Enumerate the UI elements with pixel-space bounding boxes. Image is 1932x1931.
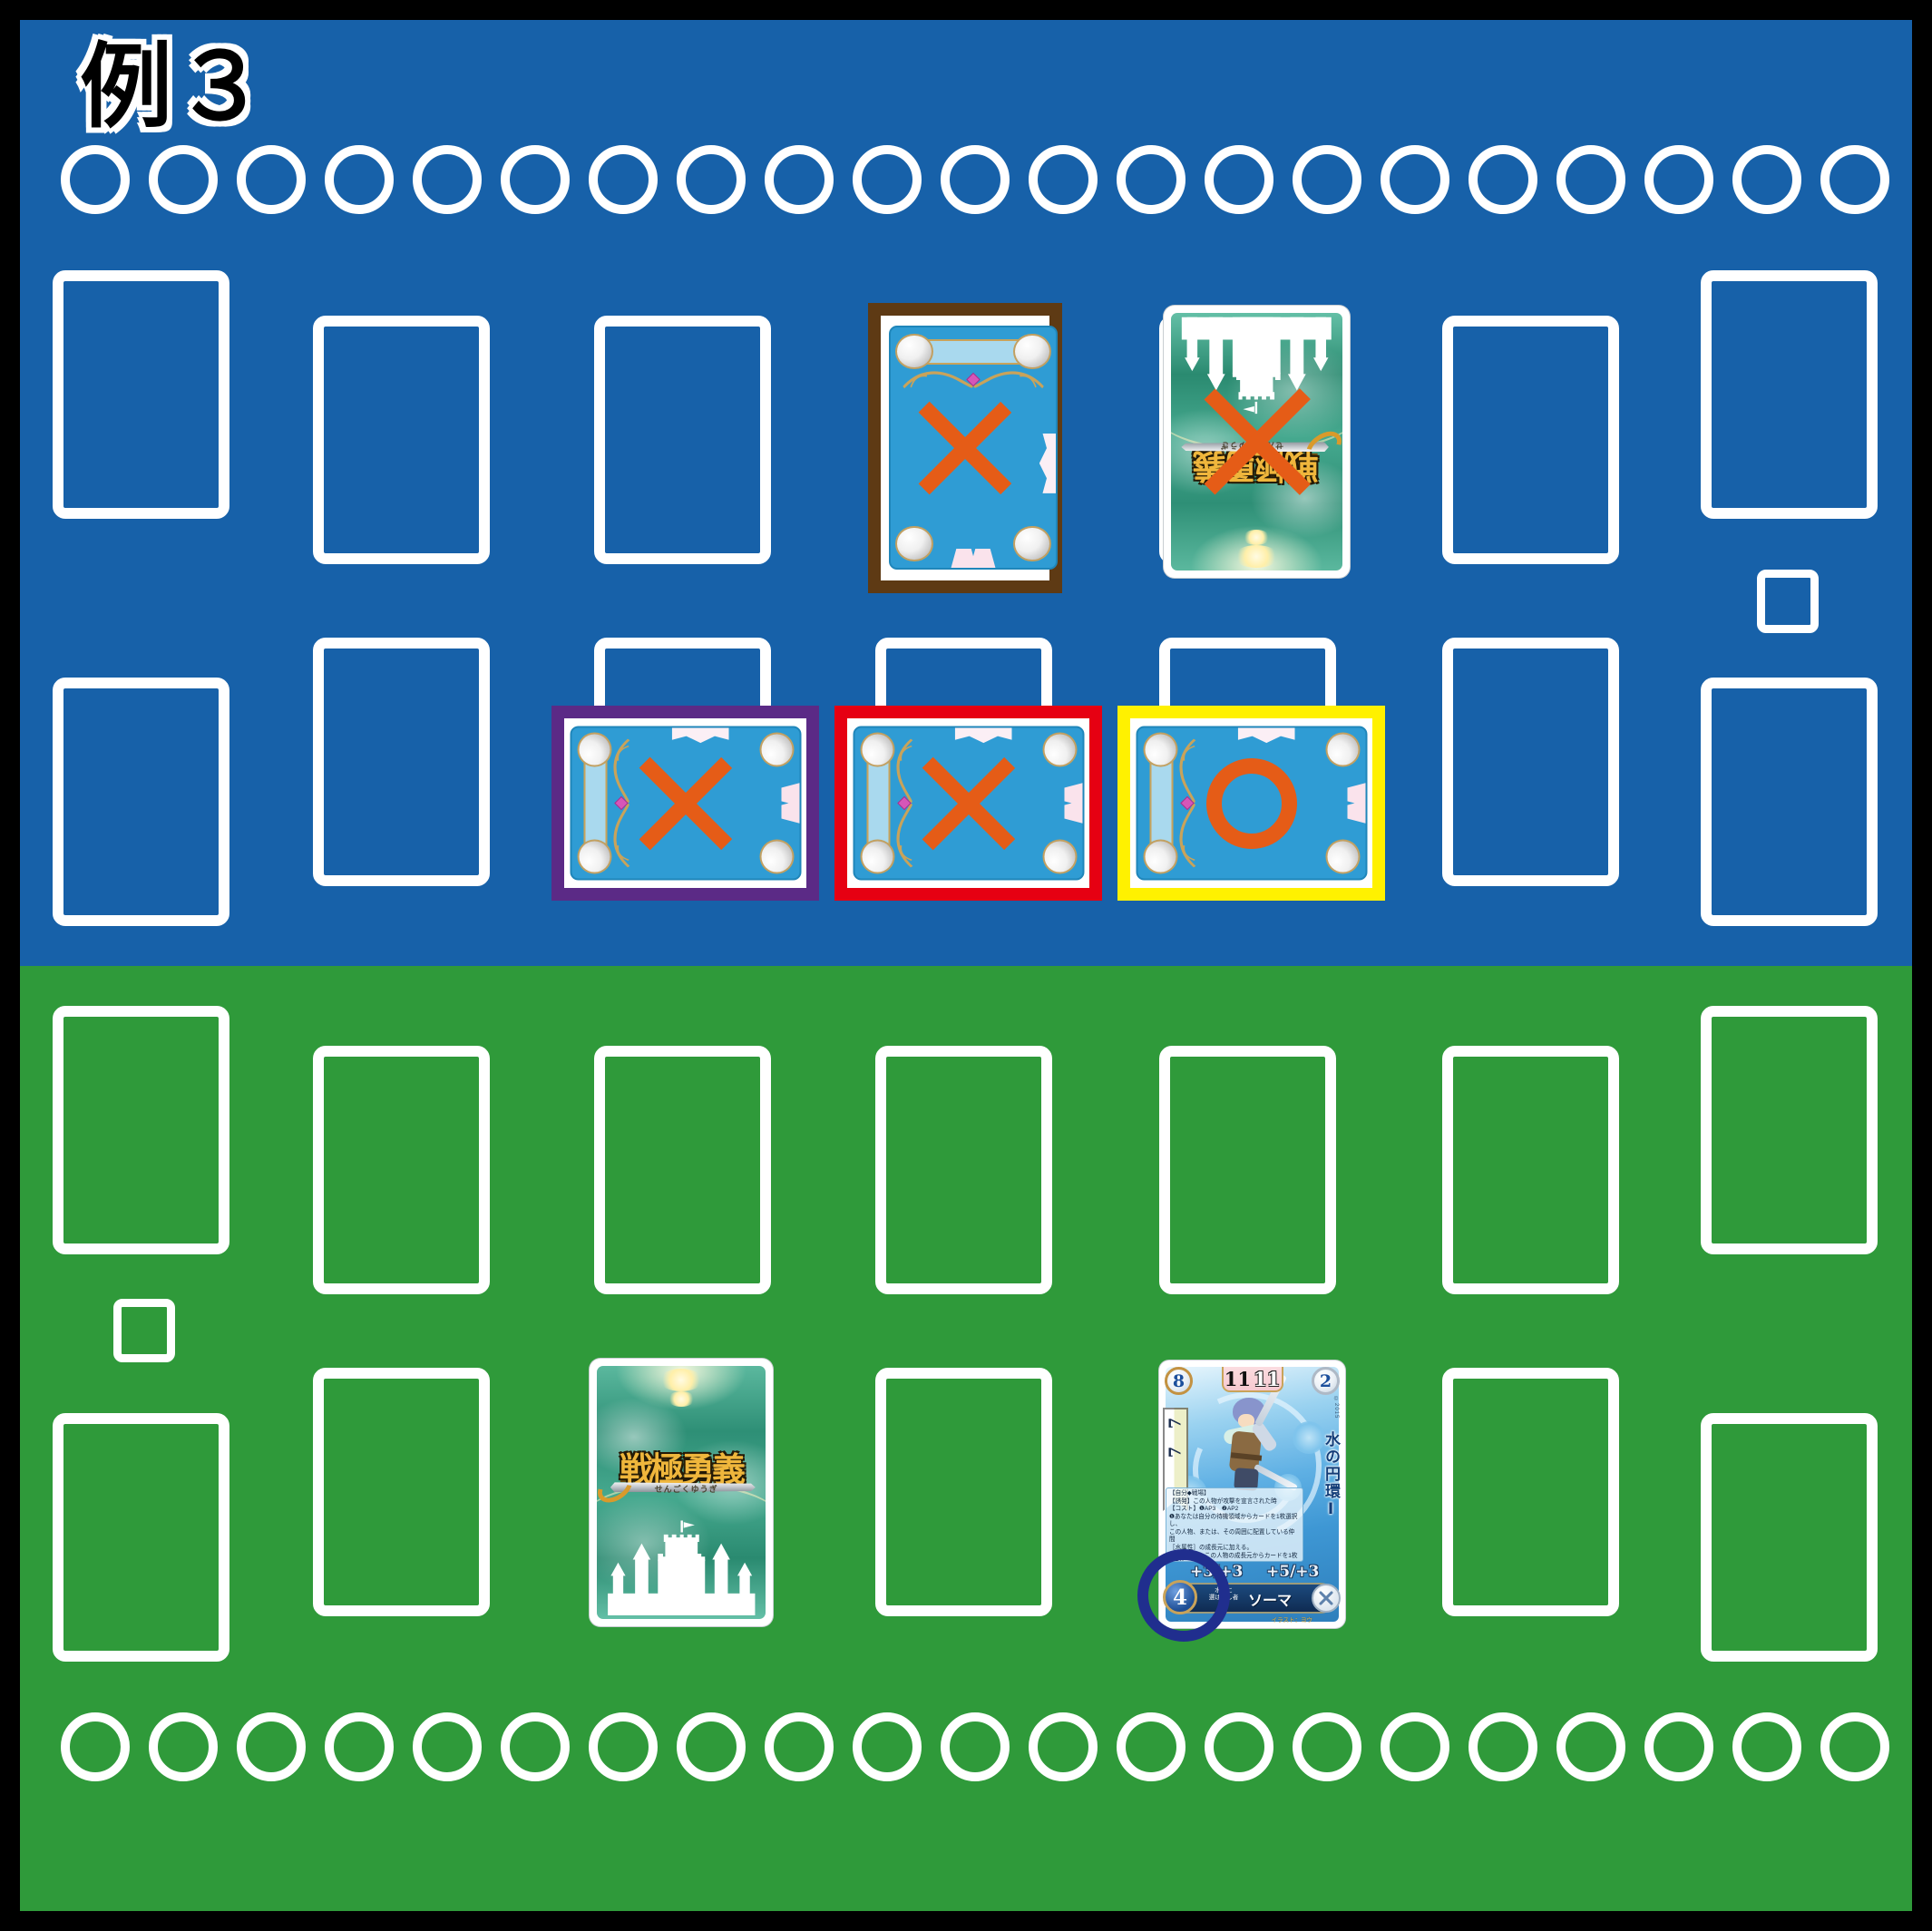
- x-mark-annotation: [1207, 392, 1307, 492]
- counter-circle: [1556, 145, 1625, 214]
- sleeve-side-notch: [954, 727, 1011, 743]
- opponent-rotated-card-yellow-highlight-frame[interactable]: [1117, 706, 1385, 901]
- card-slot[interactable]: [53, 270, 229, 519]
- counter-circle: [1029, 1712, 1098, 1781]
- sleeve-bottom-notch: [1064, 778, 1082, 826]
- counter-circle: [1029, 145, 1098, 214]
- sleeve-bottom-notch: [947, 549, 1000, 568]
- card-slot[interactable]: [1442, 1368, 1619, 1616]
- sleeve-pearl-decoration: [1042, 732, 1077, 766]
- card-slot[interactable]: [313, 316, 490, 564]
- counter-circle: [765, 1712, 834, 1781]
- counter-circle: [501, 145, 570, 214]
- player-deck-back-card[interactable]: 戦極勇義せんごくゆうぎ: [590, 1359, 773, 1626]
- counter-circle: [1117, 145, 1186, 214]
- green-card-back-art: 戦極勇義せんごくゆうぎ: [597, 1366, 766, 1619]
- power-tab-top: 1111: [1222, 1367, 1283, 1392]
- cost-badge-top-left: 8: [1165, 1367, 1193, 1395]
- card-back-glow-orb: [668, 1391, 695, 1407]
- counter-circle: [1293, 1712, 1361, 1781]
- card-slot[interactable]: [1701, 1006, 1878, 1254]
- side-value: 7: [1167, 1447, 1184, 1458]
- sleeve-pearl-decoration: [895, 526, 933, 562]
- counter-circle: [941, 1712, 1010, 1781]
- counter-circle: [61, 1712, 130, 1781]
- page-title: 例３: [80, 13, 268, 146]
- character-name: ソーマ: [1248, 1588, 1292, 1610]
- sleeve-pearl-decoration: [577, 732, 611, 766]
- x-mark-annotation: [642, 760, 728, 846]
- counter-circle: [325, 145, 394, 214]
- copyright-text: ©2015: [1333, 1397, 1339, 1419]
- counter-circle: [61, 145, 130, 214]
- counter-circle: [941, 145, 1010, 214]
- counter-circle: [1293, 145, 1361, 214]
- card-back-glow-orb: [1243, 530, 1270, 545]
- card-slot[interactable]: [313, 638, 490, 886]
- opponent-deck-back-card[interactable]: 戦極勇義せんごくゆうぎ: [1164, 306, 1350, 578]
- card-back-logo-kana: せんごくゆうぎ: [655, 1483, 718, 1495]
- sleeve-pearl-decoration: [1325, 732, 1360, 766]
- card-slot[interactable]: [875, 1046, 1052, 1294]
- sleeve-side-notch: [1039, 434, 1056, 493]
- counter-circle: [853, 1712, 922, 1781]
- sleeve-pearl-decoration: [1325, 839, 1360, 873]
- sleeve-pearl-decoration: [759, 839, 794, 873]
- counter-circle: [237, 145, 306, 214]
- card-slot[interactable]: [53, 678, 229, 926]
- sleeve-bottom-notch: [781, 778, 799, 826]
- counter-circle: [1117, 1712, 1186, 1781]
- counter-circle: [1205, 1712, 1273, 1781]
- counter-circle: [853, 145, 922, 214]
- sleeve-bottom-notch: [1347, 778, 1365, 826]
- counter-circle: [677, 145, 746, 214]
- sleeve-pearl-decoration: [860, 839, 894, 873]
- counter-circle: [1381, 145, 1449, 214]
- counter-circle: [413, 1712, 482, 1781]
- o-mark-annotation: [1206, 758, 1297, 849]
- counter-circle: [1556, 1712, 1625, 1781]
- sleeve-pearl-decoration: [759, 732, 794, 766]
- stat-right: +5/+3: [1266, 1563, 1319, 1581]
- card-slot[interactable]: [53, 1006, 229, 1254]
- sleeve-pearl-decoration: [1042, 839, 1077, 873]
- counter-circle: [1644, 1712, 1713, 1781]
- highlight-ring-annotation: [1137, 1549, 1230, 1642]
- sleeve-side-notch: [1237, 727, 1294, 743]
- side-value: 7: [1167, 1418, 1184, 1429]
- sleeve-pearl-decoration: [860, 732, 894, 766]
- sleeve-pearl-decoration: [1143, 839, 1177, 873]
- counter-circle: [1644, 145, 1713, 214]
- card-slot[interactable]: [313, 1368, 490, 1616]
- counter-circle: [1381, 1712, 1449, 1781]
- counter-circle: [589, 1712, 658, 1781]
- x-mark-annotation: [925, 760, 1011, 846]
- cost-badge-top-right: 2: [1312, 1367, 1340, 1395]
- opponent-rotated-card-red-highlight-frame[interactable]: [834, 706, 1102, 901]
- card-slot[interactable]: [53, 1413, 229, 1662]
- counter-circle: [1820, 1712, 1889, 1781]
- card-slot[interactable]: [1701, 270, 1878, 519]
- card-back-glow-orb: [659, 1369, 703, 1391]
- counter-square-slot[interactable]: [113, 1299, 175, 1362]
- sleeve-pearl-decoration: [1143, 732, 1177, 766]
- sleeve-pearl-decoration: [1013, 334, 1051, 370]
- sleeve-side-notch: [671, 727, 728, 743]
- rules-text-line: この人物、または、その周囲に配置している仲間: [1169, 1529, 1300, 1545]
- card-slot[interactable]: [313, 1046, 490, 1294]
- card-slot[interactable]: [1159, 1046, 1336, 1294]
- rules-text-line: ❶あなたは自分の待機領域からカードを1枚選択し、: [1169, 1514, 1300, 1529]
- counter-circle: [325, 1712, 394, 1781]
- card-slot[interactable]: [1701, 678, 1878, 926]
- counter-circle: [1205, 145, 1273, 214]
- playmat-board: 例３ 戦極勇義せんごくゆうぎ戦極勇義せんごくゆうぎ81111277©2015水の…: [0, 0, 1932, 1931]
- rules-text-line: 【誘発】この人物が攻撃を宣言された時: [1169, 1498, 1300, 1507]
- counter-square-slot[interactable]: [1757, 570, 1819, 633]
- counter-circle: [413, 145, 482, 214]
- card-back-glow-orb: [1234, 545, 1279, 569]
- counter-circle: [501, 1712, 570, 1781]
- power-value-primary: 11: [1225, 1368, 1251, 1390]
- castle-silhouette: [600, 1509, 763, 1615]
- counter-circle: [149, 145, 218, 214]
- card-slot[interactable]: [1701, 1413, 1878, 1662]
- counter-circle: [589, 145, 658, 214]
- attack-type-icon: [1312, 1584, 1341, 1613]
- power-value-secondary: 11: [1254, 1368, 1280, 1390]
- counter-circle: [765, 145, 834, 214]
- counter-circle: [677, 1712, 746, 1781]
- card-title-vertical: 水の円環Ⅰ: [1320, 1431, 1342, 1520]
- counter-circle: [1732, 145, 1801, 214]
- x-mark-annotation: [922, 405, 1009, 492]
- counter-circle: [1469, 1712, 1537, 1781]
- counter-circle: [237, 1712, 306, 1781]
- card-slot[interactable]: [594, 316, 771, 564]
- card-slot[interactable]: [1442, 316, 1619, 564]
- card-slot[interactable]: [1442, 1046, 1619, 1294]
- counter-circle: [149, 1712, 218, 1781]
- rules-text-line: 【コスト】❶AP3 ❷AP2: [1169, 1506, 1300, 1514]
- rules-text-line: 【自分◆戦場】: [1169, 1490, 1300, 1498]
- opponent-facedown-card-highlight-frame[interactable]: [868, 303, 1062, 593]
- card-slot[interactable]: [875, 1368, 1052, 1616]
- opponent-rotated-card-purple-highlight-frame[interactable]: [551, 706, 819, 901]
- counter-circle: [1732, 1712, 1801, 1781]
- card-slot[interactable]: [594, 1046, 771, 1294]
- counter-circle: [1820, 145, 1889, 214]
- illustrator-credit: イラスト：ヨウ: [1272, 1614, 1312, 1624]
- sleeve-pearl-decoration: [1013, 526, 1051, 562]
- counter-circle: [1469, 145, 1537, 214]
- sleeve-pearl-decoration: [577, 839, 611, 873]
- card-slot[interactable]: [1442, 638, 1619, 886]
